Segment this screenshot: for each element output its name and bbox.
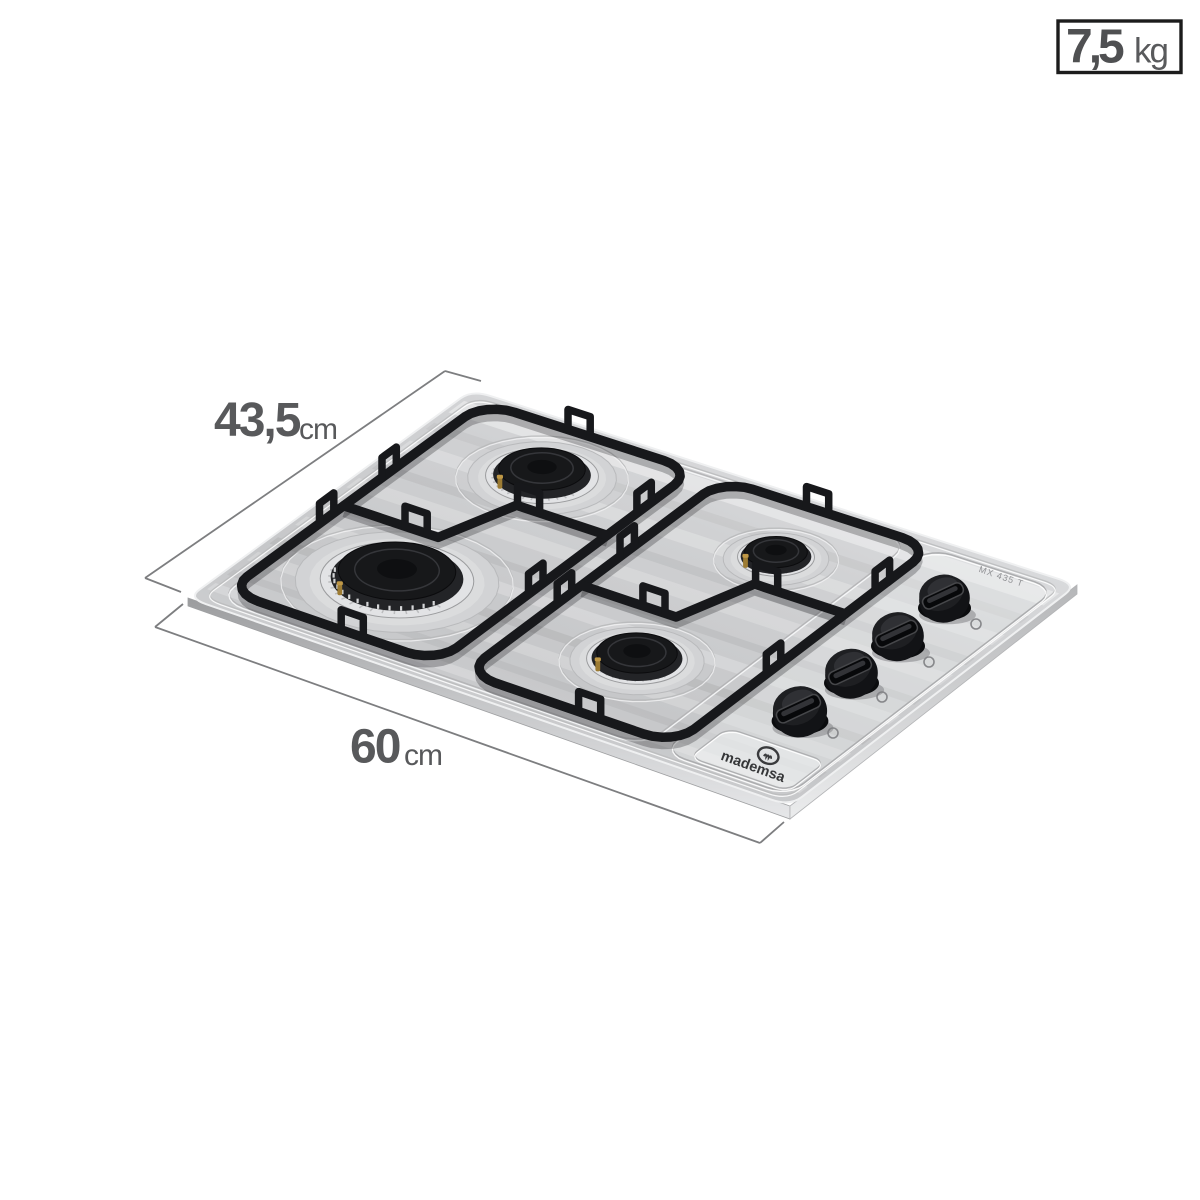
svg-text:cm: cm (299, 413, 337, 446)
svg-text:kg: kg (1134, 32, 1168, 71)
svg-text:43,5: 43,5 (214, 394, 301, 447)
svg-text:7,5: 7,5 (1066, 21, 1124, 74)
svg-text:cm: cm (404, 739, 442, 772)
svg-text:60: 60 (350, 721, 400, 774)
